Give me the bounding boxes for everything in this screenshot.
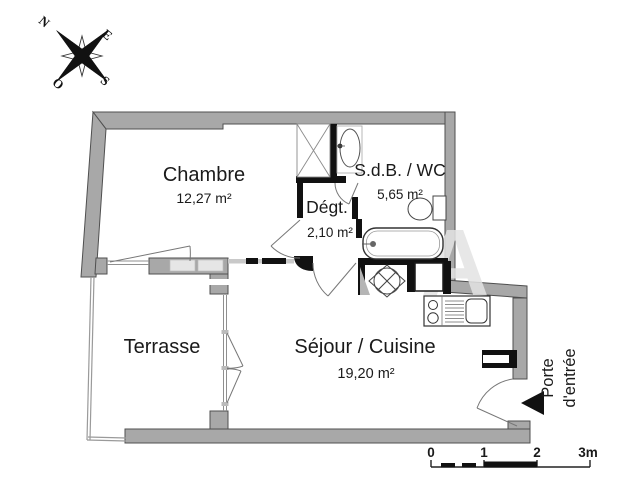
partition-kitchen-right (443, 261, 451, 294)
chambre-door-leaf (271, 220, 300, 246)
entry-door-leaf (477, 408, 517, 426)
terrasse-label: Terrasse (124, 336, 201, 358)
closet-wardrobe (297, 124, 330, 177)
entrance-annotation: Porte d'entrée (521, 348, 579, 415)
entrance-label-line1: Porte (539, 358, 557, 397)
scale-dash (462, 463, 476, 468)
scale-label-3: 3m (578, 445, 598, 460)
sdb-area: 5,65 m² (377, 187, 423, 202)
shaft-duct-inner (483, 355, 509, 363)
wall-pier-terrace-bottom (210, 411, 228, 431)
floor-plan-canvas: N E S O A (0, 0, 640, 480)
partition-closet-right (330, 124, 337, 177)
wall-bottom (125, 429, 530, 443)
window-inset (198, 260, 223, 271)
bathtub (362, 228, 443, 259)
terrace-railing (87, 277, 126, 441)
kitchen-counter (424, 296, 490, 326)
compass-east-label: E (99, 26, 115, 43)
window-inset (170, 260, 195, 271)
railing-bottom (87, 440, 126, 441)
sejour-label: Séjour / Cuisine (294, 336, 435, 358)
pier-gap (209, 279, 229, 285)
chambre-area: 12,27 m² (176, 190, 232, 206)
scale-bar: 0 1 2 3m (427, 445, 598, 468)
scale-solid-segment (484, 462, 537, 468)
sdb-label: S.d.B. / WC (354, 160, 445, 180)
partition-kitchen-mid (407, 262, 415, 292)
floor-plan: N E S O A (0, 0, 640, 480)
sejour-area: 19,20 m² (337, 366, 394, 382)
kitchen-sink-basin (466, 299, 487, 323)
water-heater (360, 265, 405, 297)
terrace-door-arc-upper (227, 366, 243, 368)
chambre-label: Chambre (163, 164, 245, 186)
bathtub-faucet (370, 241, 376, 247)
partition-thin-seg-a (246, 258, 258, 264)
kitchen-cabinet (415, 263, 443, 291)
railing-bottom-inner (88, 437, 126, 438)
wall-left (81, 112, 106, 277)
entrance-label-line2: d'entrée (561, 348, 579, 407)
terrace-door-arc-lower (227, 369, 241, 371)
partition-deg-right-b (356, 219, 362, 238)
wall-top (93, 112, 455, 129)
degagement-area: 2,10 m² (307, 225, 353, 240)
partition-thin-seg-b (262, 258, 286, 264)
scale-label-0: 0 (427, 445, 435, 460)
entry-door-arc (477, 379, 513, 408)
partition-deg-left (297, 178, 303, 218)
compass-rose: N E S O (36, 13, 116, 93)
scale-label-2: 2 (533, 445, 541, 460)
scale-label-1: 1 (480, 445, 488, 460)
degagement-label: Dégt. (306, 197, 348, 217)
sink-drainer (445, 301, 464, 322)
partition-deg-right-a (352, 197, 358, 219)
degagement-door-leaf (328, 263, 356, 296)
compass-north-label: N (36, 13, 53, 31)
toilet-tank (433, 196, 446, 220)
compass-west-label: O (50, 75, 67, 93)
terrace-door-leaf-lower (227, 371, 241, 403)
scale-dash (441, 463, 455, 468)
degagement-door-arc (313, 263, 328, 296)
terrace-door-leaf-upper (227, 333, 243, 366)
wall-chambre-terrasse-left (95, 258, 107, 274)
